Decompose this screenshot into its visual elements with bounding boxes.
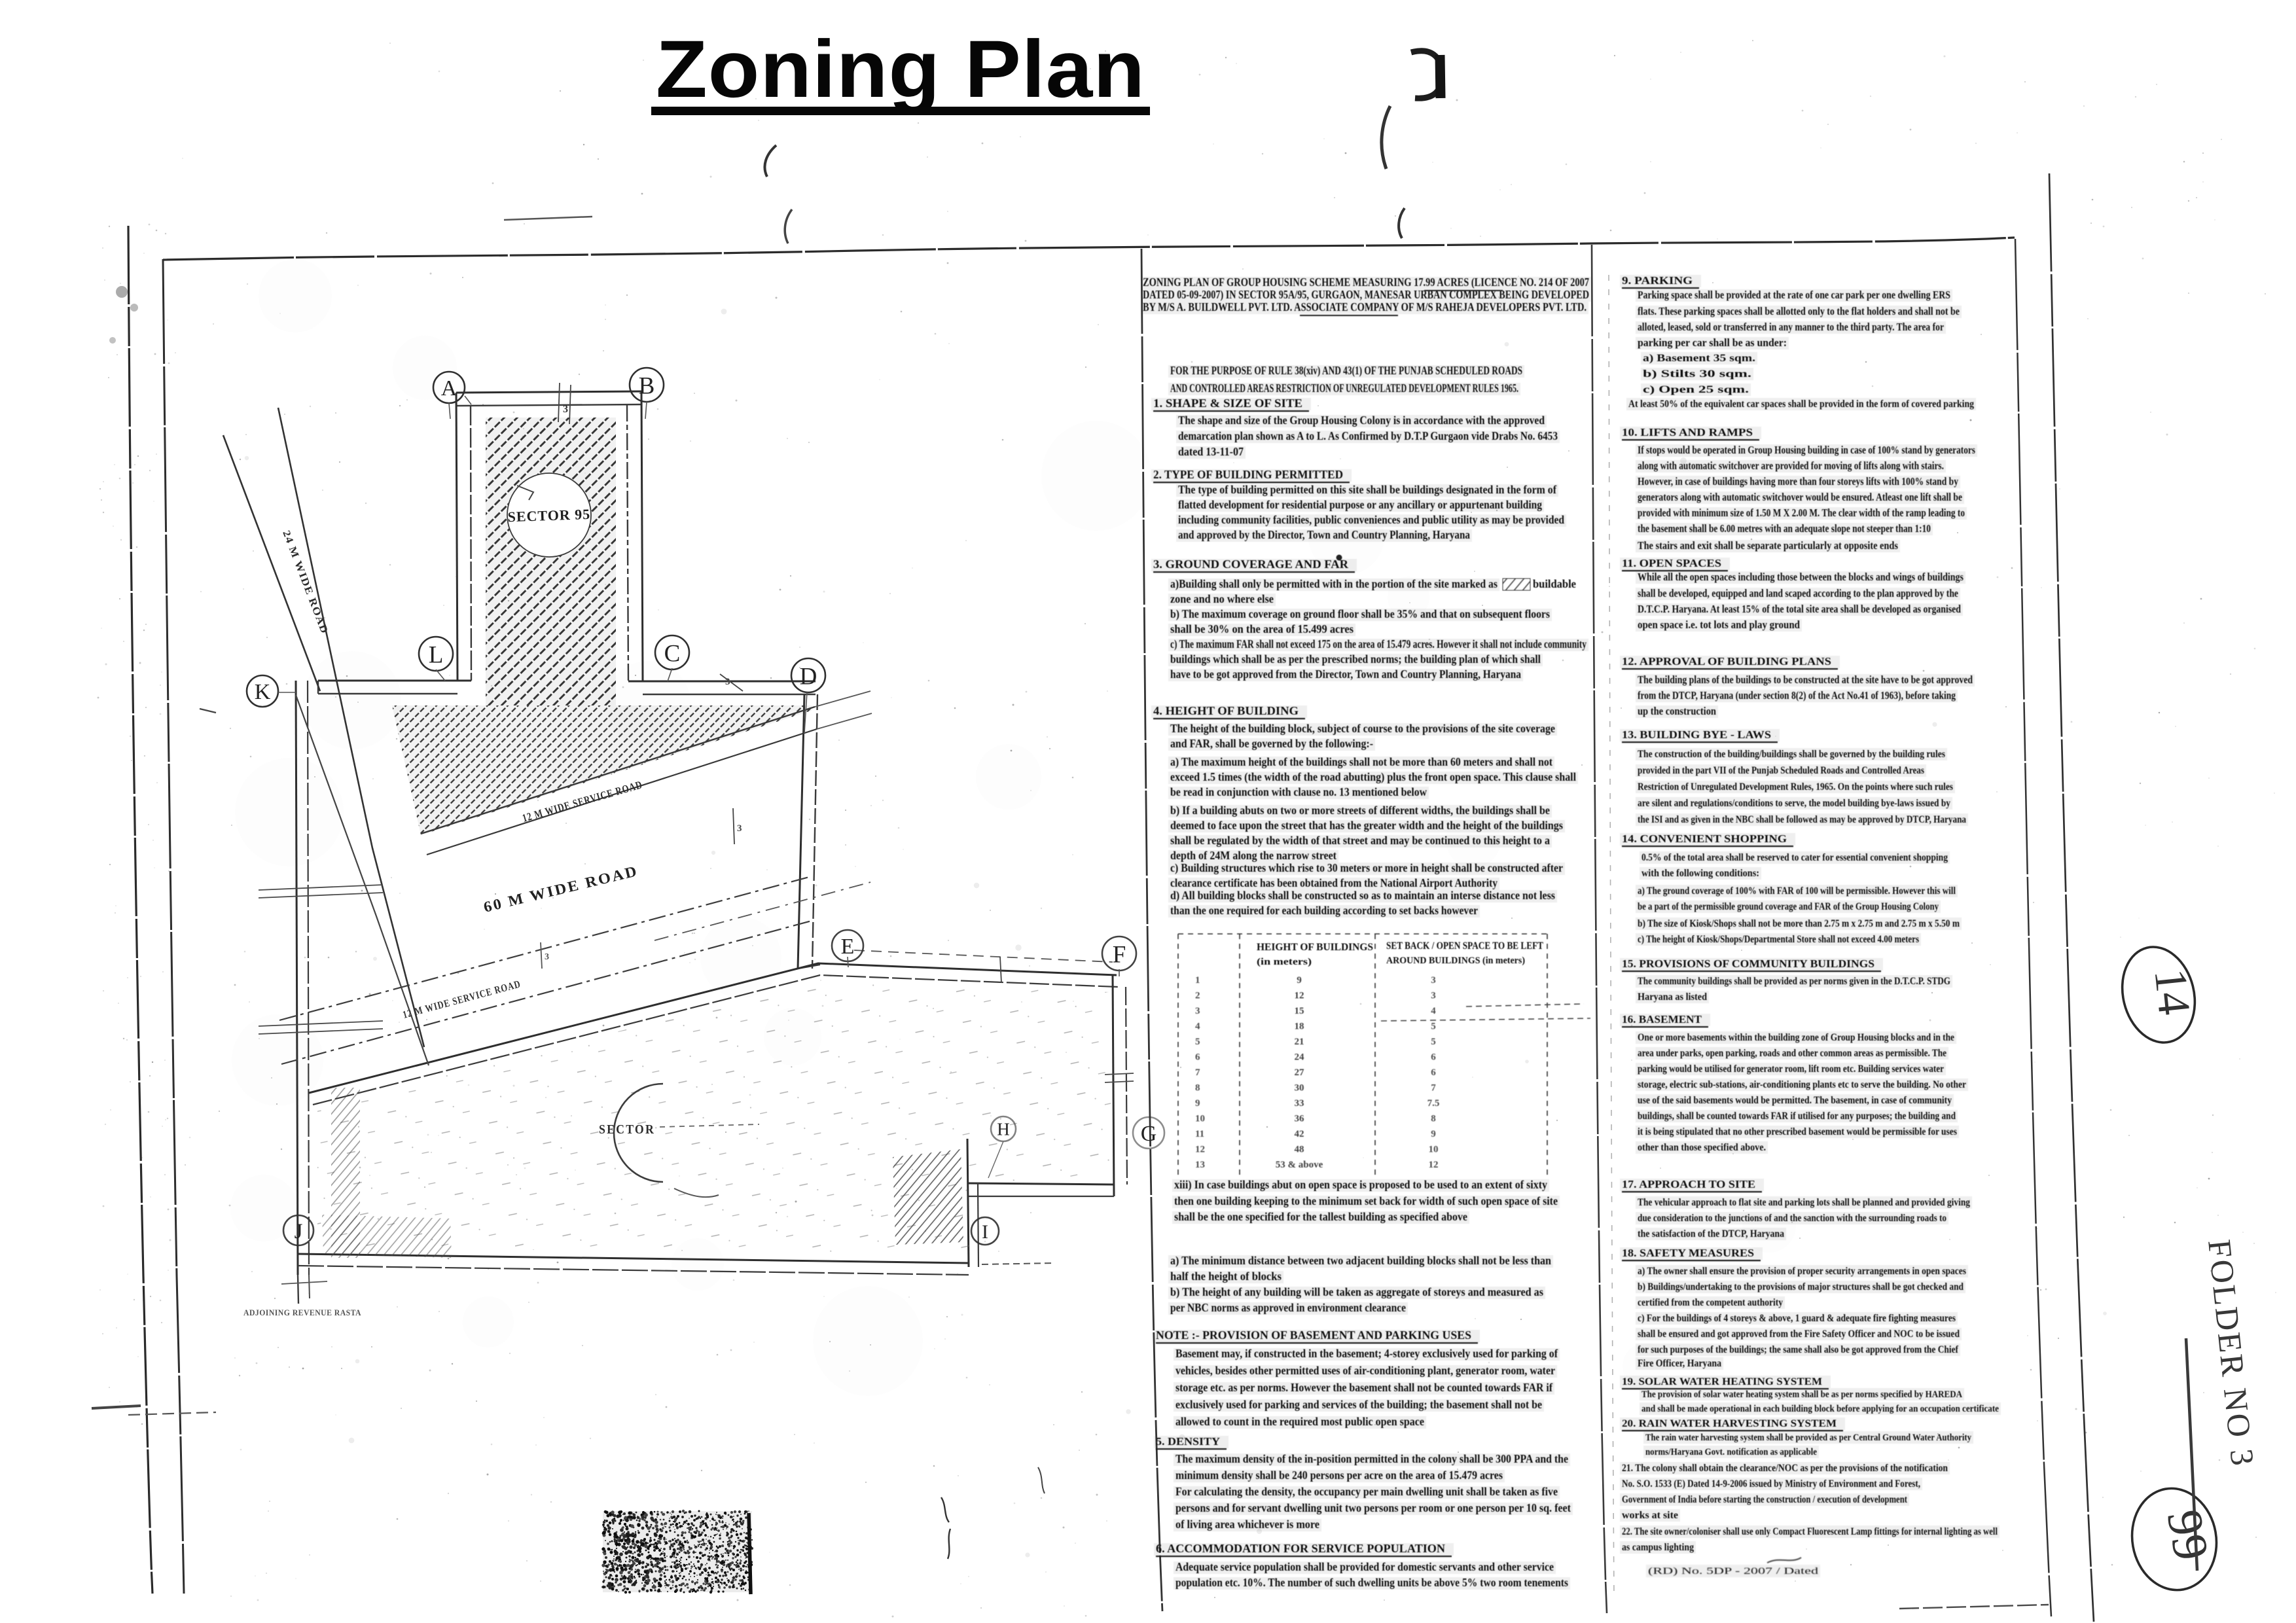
- svg-text:Government of India before sta: Government of India before starting the …: [1622, 1494, 1908, 1505]
- svg-text:F: F: [1113, 941, 1126, 968]
- svg-text:14: 14: [2144, 967, 2199, 1018]
- svg-text:for such purposes of the build: for such purposes of the buildings; the …: [1638, 1344, 1959, 1355]
- svg-text:8: 8: [1195, 1083, 1200, 1094]
- svg-text:BY M/S A. BUILDWELL PVT. LTD.: BY M/S A. BUILDWELL PVT. LTD. ASSOCIATE …: [1143, 300, 1587, 313]
- svg-text:5: 5: [1195, 1037, 1200, 1047]
- svg-text:12: 12: [1195, 1145, 1205, 1155]
- svg-text:18. SAFETY MEASURES: 18. SAFETY MEASURES: [1622, 1247, 1754, 1259]
- svg-text:works at site: works at site: [1622, 1510, 1678, 1521]
- svg-text:d) All building blocks shall b: d) All building blocks shall be construc…: [1170, 889, 1555, 902]
- svg-text:3: 3: [1431, 991, 1436, 1001]
- svg-text:allowed to count in the requir: allowed to count in the required most pu…: [1175, 1415, 1424, 1428]
- svg-text:15: 15: [1295, 1006, 1304, 1016]
- svg-text:Restriction of Unregulated Dev: Restriction of Unregulated Development R…: [1638, 781, 1953, 793]
- svg-text:b) Buildings/undertaking to th: b) Buildings/undertaking to the provisio…: [1638, 1281, 1964, 1293]
- svg-text:SECTOR 95: SECTOR 95: [507, 506, 590, 525]
- svg-text:depth of 24M along the narrow: depth of 24M along the narrow street: [1170, 849, 1336, 862]
- svg-text:along with automatic switchove: along with automatic switchover are prov…: [1638, 459, 1944, 472]
- svg-text:a) Basement 35 sqm.: a) Basement 35 sqm.: [1643, 353, 1755, 364]
- svg-text:12. APPROVAL OF BUILDING PLANS: 12. APPROVAL OF BUILDING PLANS: [1622, 655, 1831, 668]
- svg-text:use of the said basements woul: use of the said basements would be permi…: [1638, 1095, 1952, 1106]
- svg-text:ADJOINING REVENUE RASTA: ADJOINING REVENUE RASTA: [243, 1308, 361, 1317]
- svg-text:2: 2: [1195, 991, 1200, 1001]
- svg-text:AROUND BUILDINGS (in meters): AROUND BUILDINGS (in meters): [1386, 955, 1525, 966]
- svg-text:9. PARKING: 9. PARKING: [1622, 274, 1693, 287]
- svg-text:buildings, shall be counted to: buildings, shall be counted towards FAR …: [1638, 1111, 1956, 1122]
- svg-text:exclusively used for parking a: exclusively used for parking and service…: [1175, 1398, 1542, 1411]
- svg-text:be a part of the permissible g: be a part of the permissible ground cove…: [1638, 901, 1939, 912]
- svg-text:30: 30: [1295, 1083, 1304, 1094]
- svg-text:of living area whichever is mo: of living area whichever is more: [1175, 1518, 1319, 1531]
- svg-text:17. APPROACH TO SITE: 17. APPROACH TO SITE: [1622, 1178, 1755, 1190]
- svg-text:NOTE :- PROVISION OF BASEMENT: NOTE :- PROVISION OF BASEMENT AND PARKIN…: [1156, 1329, 1471, 1342]
- svg-text:6: 6: [1431, 1067, 1436, 1078]
- svg-text:storage etc. as per norms. How: storage etc. as per norms. However the b…: [1175, 1381, 1552, 1394]
- svg-text:Haryana as listed: Haryana as listed: [1638, 991, 1707, 1003]
- svg-text:The height of the building blo: The height of the building block, subjec…: [1170, 722, 1555, 735]
- svg-text:b) Stilts 30 sqm.: b) Stilts 30 sqm.: [1643, 368, 1751, 380]
- svg-text:9: 9: [1431, 1129, 1436, 1139]
- svg-text:48: 48: [1295, 1145, 1304, 1155]
- svg-text:per NBC norms as approved in e: per NBC norms as approved in environment…: [1170, 1301, 1406, 1314]
- svg-text:99: 99: [2157, 1506, 2219, 1564]
- svg-text:The type of building permitted: The type of building permitted on this s…: [1178, 483, 1556, 496]
- svg-text:are silent and regulations/con: are silent and regulations/conditions to…: [1638, 798, 1950, 809]
- svg-text:b) The size of Kiosk/Shops sha: b) The size of Kiosk/Shops shall not be …: [1638, 918, 1960, 929]
- svg-text:have to be got approved from t: have to be got approved from the Directo…: [1170, 668, 1521, 681]
- svg-text:shall be the one specified for: shall be the one specified for the talle…: [1174, 1210, 1467, 1223]
- svg-text:due consideration to the junct: due consideration to the junctions of an…: [1638, 1213, 1946, 1224]
- svg-text:the basement shall be 6.00 met: the basement shall be 6.00 metres with a…: [1638, 522, 1931, 535]
- svg-text:14. CONVENIENT SHOPPING: 14. CONVENIENT SHOPPING: [1622, 832, 1787, 845]
- svg-text:10. LIFTS AND RAMPS: 10. LIFTS AND RAMPS: [1622, 426, 1753, 438]
- svg-text:6. ACCOMMODATION FOR SERVICE P: 6. ACCOMMODATION FOR SERVICE POPULATION: [1156, 1542, 1445, 1555]
- svg-text:parking would be utilised for: parking would be utilised for generator …: [1638, 1063, 1944, 1075]
- svg-text:vehicles, besides other permit: vehicles, besides other permitted uses o…: [1175, 1364, 1555, 1377]
- svg-text:from the DTCP, Haryana (under: from the DTCP, Haryana (under section 8(…: [1638, 689, 1956, 702]
- svg-text:The vehicular approach to flat: The vehicular approach to flat site and …: [1638, 1197, 1970, 1208]
- svg-text:13. BUILDING BYE - LAWS: 13. BUILDING BYE - LAWS: [1622, 728, 1771, 741]
- svg-text:K: K: [255, 680, 271, 704]
- svg-text:a) The owner shall ensure the: a) The owner shall ensure the provision …: [1638, 1266, 1966, 1277]
- svg-text:and FAR, shall be governed by: and FAR, shall be governed by the follow…: [1170, 737, 1373, 750]
- svg-text:For calculating the density, t: For calculating the density, the occupan…: [1175, 1485, 1558, 1498]
- svg-text:A: A: [441, 376, 457, 401]
- svg-text:The building plans of the buil: The building plans of the buildings to b…: [1638, 673, 1973, 686]
- svg-text:flatted development for reside: flatted development for residential purp…: [1178, 498, 1542, 511]
- svg-text:certified from the competent a: certified from the competent authority: [1638, 1297, 1783, 1308]
- svg-text:L: L: [429, 641, 444, 668]
- svg-text:16. BASEMENT: 16. BASEMENT: [1622, 1013, 1702, 1026]
- svg-text:b) The maximum coverage on gro: b) The maximum coverage on ground floor …: [1170, 607, 1550, 620]
- svg-text:as campus lighting: as campus lighting: [1622, 1542, 1694, 1553]
- svg-text:The maximum density of the in-: The maximum density of the in-position p…: [1175, 1452, 1568, 1465]
- svg-text:c) The height of Kiosk/Shops/D: c) The height of Kiosk/Shops/Departmenta…: [1638, 934, 1919, 945]
- svg-text:SECTOR: SECTOR: [599, 1122, 655, 1137]
- svg-text:3: 3: [545, 952, 549, 962]
- svg-text:SET BACK / OPEN SPACE TO BE LE: SET BACK / OPEN SPACE TO BE LEFT: [1386, 940, 1543, 952]
- svg-text:53 & above: 53 & above: [1276, 1160, 1323, 1170]
- svg-text:1: 1: [1195, 975, 1200, 986]
- svg-text:DATED 05-09-2007) IN SECTOR 95: DATED 05-09-2007) IN SECTOR 95A/95, GURG…: [1143, 288, 1589, 302]
- svg-text:15. PROVISIONS OF COMMUNITY BU: 15. PROVISIONS OF COMMUNITY BUILDINGS: [1622, 957, 1874, 970]
- svg-text:storage, electric sub-stations: storage, electric sub-stations, air-cond…: [1638, 1079, 1966, 1090]
- svg-text:a) The ground coverage of 100%: a) The ground coverage of 100% with FAR …: [1638, 885, 1956, 897]
- svg-text:persons and for servant dwelli: persons and for servant dwelling unit tw…: [1175, 1501, 1571, 1514]
- svg-text:7: 7: [1195, 1067, 1200, 1078]
- svg-text:population etc. 10%. The numbe: population etc. 10%. The number of such …: [1175, 1576, 1568, 1589]
- svg-text:the ISI and as given in the NB: the ISI and as given in the NBC shall be…: [1638, 814, 1966, 825]
- svg-text:be read in conjunction with cl: be read in conjunction with clause no. 1…: [1170, 785, 1427, 798]
- svg-text:2. TYPE OF BUILDING PERMITTED: 2. TYPE OF BUILDING PERMITTED: [1153, 468, 1343, 481]
- svg-text:However, in case of buildings: However, in case of buildings having mor…: [1638, 475, 1959, 488]
- svg-text:While all the open spaces incl: While all the open spaces including thos…: [1638, 571, 1964, 583]
- svg-text:shall be regulated by the widt: shall be regulated by the width of that …: [1170, 834, 1550, 847]
- svg-text:5: 5: [1431, 1037, 1436, 1047]
- svg-text:up the construction: up the construction: [1638, 705, 1716, 717]
- svg-text:Parking space shall be provide: Parking space shall be provided at the r…: [1638, 289, 1950, 301]
- svg-text:21. The colony shall obtain th: 21. The colony shall obtain the clearanc…: [1622, 1463, 1948, 1474]
- svg-text:4. HEIGHT OF BUILDING: 4. HEIGHT OF BUILDING: [1153, 704, 1299, 717]
- svg-text:xiii) In case buildings abut o: xiii) In case buildings abut on open spa…: [1174, 1178, 1547, 1191]
- svg-text:and shall be made operational: and shall be made operational in each bu…: [1641, 1404, 1999, 1414]
- svg-text:12: 12: [1429, 1160, 1439, 1170]
- svg-text:9: 9: [1297, 975, 1302, 986]
- svg-text:HEIGHT OF BUILDINGS: HEIGHT OF BUILDINGS: [1257, 942, 1373, 953]
- svg-text:a) The maximum height of the b: a) The maximum height of the buildings s…: [1170, 755, 1552, 768]
- svg-text:21: 21: [1295, 1037, 1304, 1047]
- svg-text:5. DENSITY: 5. DENSITY: [1156, 1435, 1220, 1448]
- svg-text:generators along with automati: generators along with automatic switchov…: [1638, 491, 1962, 503]
- svg-text:The construction of the buildi: The construction of the building/buildin…: [1638, 749, 1945, 760]
- svg-text:the satisfaction of the DTCP,: the satisfaction of the DTCP, Haryana: [1638, 1228, 1784, 1240]
- svg-text:b) The height of any building: b) The height of any building will be ta…: [1170, 1285, 1543, 1298]
- svg-text:c) Open 25 sqm.: c) Open 25 sqm.: [1643, 384, 1749, 395]
- svg-text:42: 42: [1295, 1129, 1304, 1139]
- svg-text:24: 24: [1295, 1052, 1305, 1063]
- svg-text:5: 5: [1431, 1022, 1436, 1032]
- svg-text:One or more basements within t: One or more basements within the buildin…: [1638, 1032, 1954, 1043]
- svg-text:clearance certificate has been: clearance certificate has been obtained …: [1170, 876, 1498, 889]
- svg-text:24 M WIDE ROAD: 24 M WIDE ROAD: [280, 529, 330, 635]
- svg-text:3: 3: [563, 404, 568, 415]
- svg-text:half the height of blocks: half the height of blocks: [1170, 1270, 1282, 1283]
- svg-text:G: G: [1141, 1122, 1157, 1146]
- svg-text:3: 3: [737, 823, 742, 834]
- svg-text:J: J: [295, 1220, 303, 1243]
- svg-text:The stairs and exit shall be s: The stairs and exit shall be separate pa…: [1638, 539, 1898, 552]
- svg-text:alloted, leased, sold or trans: alloted, leased, sold or transferred in …: [1638, 321, 1944, 333]
- svg-text:ZONING PLAN OF GROUP HOUSING S: ZONING PLAN OF GROUP HOUSING SCHEME MEAS…: [1143, 276, 1589, 289]
- svg-text:12 M WIDE SERVICE ROAD: 12 M WIDE SERVICE ROAD: [402, 978, 522, 1021]
- svg-text:including community facilities: including community facilities, public c…: [1178, 513, 1564, 526]
- svg-text:20. RAIN WATER HARVESTING SYST: 20. RAIN WATER HARVESTING SYSTEM: [1622, 1418, 1837, 1429]
- svg-text:AND CONTROLLED AREAS RESTRICTI: AND CONTROLLED AREAS RESTRICTION OF UNRE…: [1170, 382, 1518, 395]
- svg-text:shall be developed, equipped a: shall be developed, equipped and land sc…: [1638, 587, 1958, 599]
- svg-text:The provision of solar water h: The provision of solar water heating sys…: [1641, 1389, 1962, 1400]
- svg-text:c) For the buildings of 4 stor: c) For the buildings of 4 storeys & abov…: [1638, 1313, 1956, 1324]
- svg-text:10: 10: [1429, 1145, 1439, 1155]
- svg-text:12: 12: [1295, 991, 1304, 1001]
- svg-text:FOLDER NO 3: FOLDER NO 3: [2201, 1238, 2261, 1469]
- svg-text:deemed to face upon the street: deemed to face upon the street that has …: [1170, 819, 1563, 832]
- svg-text:7.5: 7.5: [1427, 1098, 1440, 1109]
- svg-text:and approved by the Director,: and approved by the Director, Town and C…: [1178, 528, 1470, 541]
- svg-text:7: 7: [1431, 1083, 1436, 1094]
- svg-text:3: 3: [1431, 975, 1436, 986]
- svg-text:c) The maximum FAR shall not e: c) The maximum FAR shall not exceed 175 …: [1170, 637, 1587, 651]
- svg-text:FOR THE PURPOSE OF RULE 38(xiv: FOR THE PURPOSE OF RULE 38(xiv) AND 43(1…: [1170, 364, 1522, 378]
- svg-text:area under parks, open parking: area under parks, open parking, roads an…: [1638, 1048, 1946, 1059]
- svg-text:6: 6: [1195, 1052, 1200, 1063]
- svg-text:9: 9: [1195, 1098, 1200, 1109]
- svg-text:C: C: [664, 640, 681, 667]
- svg-text:then one building keeping to t: then one building keeping to the minimum…: [1174, 1194, 1558, 1207]
- svg-text:The rain water harvesting syst: The rain water harvesting system shall b…: [1645, 1433, 1971, 1443]
- svg-text:1. SHAPE & SIZE OF SITE: 1. SHAPE & SIZE OF SITE: [1153, 397, 1302, 410]
- svg-text:13: 13: [1195, 1160, 1205, 1170]
- svg-text:provided in the part VII of th: provided in the part VII of the Punjab S…: [1638, 765, 1924, 776]
- svg-text:4: 4: [1431, 1006, 1436, 1016]
- svg-text:shall be ensured and got appro: shall be ensured and got approved from t…: [1638, 1329, 1960, 1340]
- svg-text:Adequate service population sh: Adequate service population shall be pro…: [1175, 1560, 1554, 1573]
- svg-text:If stops would be operated in: If stops would be operated in Group Hous…: [1638, 444, 1975, 456]
- svg-text:open space i.e. tot lots and p: open space i.e. tot lots and play ground: [1638, 618, 1800, 631]
- svg-text:provided with minimum size of: provided with minimum size of 1.50 M X 2…: [1638, 507, 1965, 519]
- svg-text:3. GROUND COVERAGE AND FAR: 3. GROUND COVERAGE AND FAR: [1153, 558, 1349, 571]
- svg-text:18: 18: [1295, 1022, 1304, 1032]
- svg-text:D: D: [800, 663, 817, 690]
- svg-text:36: 36: [1295, 1114, 1305, 1124]
- svg-text:22. The site owner/coloniser s: 22. The site owner/coloniser shall use o…: [1622, 1526, 1998, 1537]
- svg-text:60 M WIDE ROAD: 60 M WIDE ROAD: [482, 863, 639, 916]
- svg-text:it is being stipulated that no: it is being stipulated that no other pre…: [1638, 1126, 1957, 1137]
- svg-text:(RD) No. 5DP - 2007 /: (RD) No. 5DP - 2007 / Dated: [1648, 1566, 1819, 1577]
- svg-text:Basement may, if constructed i: Basement may, if constructed in the base…: [1175, 1347, 1558, 1360]
- svg-text:3: 3: [1195, 1006, 1200, 1016]
- svg-text:than the one required for each: than the one required for each building …: [1170, 904, 1478, 917]
- svg-text:Zoning Plan: Zoning Plan: [656, 24, 1145, 115]
- svg-text:buildable: buildable: [1533, 577, 1576, 590]
- svg-text:demarcation plan shown as A to: demarcation plan shown as A to L. As Con…: [1178, 429, 1558, 442]
- svg-text:6: 6: [1431, 1052, 1436, 1063]
- svg-text:4: 4: [1195, 1022, 1200, 1032]
- svg-text:flats. These parking spaces sh: flats. These parking spaces shall be all…: [1638, 305, 1960, 317]
- svg-text:E: E: [841, 935, 855, 959]
- svg-text:dated 13-11-07: dated 13-11-07: [1178, 445, 1244, 458]
- svg-text:8: 8: [1431, 1114, 1436, 1124]
- svg-text:B: B: [639, 372, 655, 399]
- svg-text:H: H: [997, 1120, 1010, 1139]
- svg-text:The shape and size of the Grou: The shape and size of the Group Housing …: [1178, 414, 1545, 427]
- svg-text:0.5% of the total area shall b: 0.5% of the total area shall be reserved…: [1641, 852, 1948, 863]
- svg-text:b) If a building abuts on two: b) If a building abuts on two or more st…: [1170, 804, 1550, 817]
- svg-text:a)Building shall only be permi: a)Building shall only be permitted with …: [1170, 577, 1498, 590]
- svg-text:19. SOLAR WATER HEATING SYSTEM: 19. SOLAR WATER HEATING SYSTEM: [1622, 1376, 1822, 1387]
- svg-text:27: 27: [1295, 1067, 1305, 1078]
- svg-text:At least 50% of the equivalent: At least 50% of the equivalent car space…: [1628, 399, 1974, 410]
- svg-text:buildings which shall be as pe: buildings which shall be as per the pres…: [1170, 652, 1541, 666]
- svg-text:minimum density shall be 240 p: minimum density shall be 240 persons per…: [1175, 1469, 1503, 1482]
- svg-text:33: 33: [1295, 1098, 1304, 1109]
- svg-text:(in meters): (in meters): [1257, 957, 1312, 967]
- svg-text:The community buildings shall: The community buildings shall be provide…: [1638, 976, 1950, 987]
- svg-text:exceed 1.5 times (the width of: exceed 1.5 times (the width of the road …: [1170, 770, 1576, 783]
- svg-text:zone and no where else: zone and no where else: [1170, 592, 1274, 605]
- svg-text:parking per car shall be as un: parking per car shall be as under:: [1638, 336, 1787, 349]
- svg-text:I: I: [982, 1221, 988, 1243]
- svg-text:11: 11: [1195, 1129, 1204, 1139]
- svg-text:D.T.C.P. Haryana. At least 15%: D.T.C.P. Haryana. At least 15% of the to…: [1638, 603, 1961, 615]
- svg-text:10: 10: [1195, 1114, 1205, 1124]
- svg-text:c) Building structures which r: c) Building structures which rise to 30 …: [1170, 861, 1563, 874]
- svg-text:a) The minimum distance betwee: a) The minimum distance between two adja…: [1170, 1254, 1551, 1267]
- svg-text:norms/Haryana Govt. notificati: norms/Haryana Govt. notification as appl…: [1645, 1447, 1817, 1457]
- svg-text:other than those specified abo: other than those specified above.: [1638, 1142, 1766, 1153]
- svg-text:11. OPEN SPACES: 11. OPEN SPACES: [1622, 557, 1721, 569]
- svg-text:Fire Officer, Haryana: Fire Officer, Haryana: [1638, 1358, 1721, 1369]
- svg-text:No. S.O. 1533 (E) Dated 14-9-2: No. S.O. 1533 (E) Dated 14-9-2006 issued…: [1622, 1478, 1920, 1489]
- svg-text:3: 3: [725, 677, 730, 687]
- svg-text:shall be 30% on the area of 15: shall be 30% on the area of 15.499 acres: [1170, 622, 1354, 635]
- svg-text:with the following conditions:: with the following conditions:: [1641, 868, 1759, 879]
